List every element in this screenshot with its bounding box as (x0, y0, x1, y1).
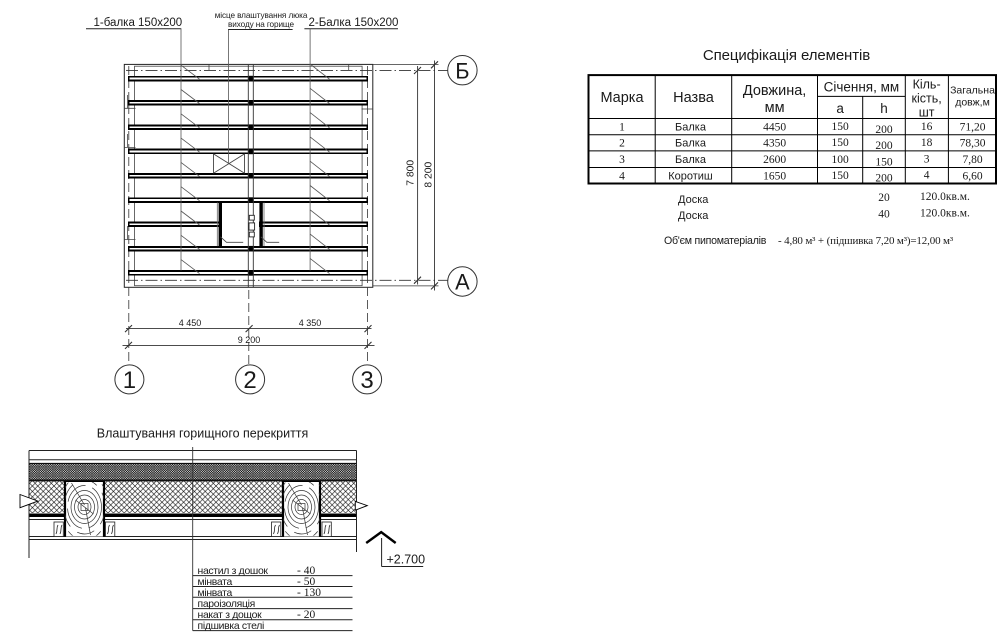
svg-text:78,30: 78,30 (960, 138, 986, 150)
svg-text:Балка: Балка (675, 154, 707, 166)
svg-text:- 4,80 м³ + (підшивка 7,20 м³): - 4,80 м³ + (підшивка 7,20 м³)=12,00 м³ (778, 235, 954, 247)
svg-text:16: 16 (921, 121, 933, 133)
svg-text:Доска: Доска (678, 194, 709, 206)
svg-text:200: 200 (875, 173, 893, 185)
svg-text:4: 4 (924, 170, 930, 182)
svg-text:4450: 4450 (763, 122, 786, 134)
svg-text:2: 2 (243, 367, 256, 394)
svg-text:4 450: 4 450 (179, 318, 202, 328)
svg-text:2-Балка 150х200: 2-Балка 150х200 (309, 17, 399, 29)
svg-text:3: 3 (924, 153, 930, 165)
svg-text:200: 200 (875, 140, 893, 152)
svg-text:Назва: Назва (673, 90, 715, 106)
svg-text:a: a (836, 101, 844, 116)
svg-text:Влаштування горищного перекрит: Влаштування горищного перекриття (97, 427, 308, 441)
svg-text:8 200: 8 200 (423, 162, 434, 188)
svg-text:Довжина,: Довжина, (743, 83, 807, 99)
svg-text:виходу на горище: виходу на горище (228, 20, 294, 29)
svg-text:Специфікація елементів: Специфікація елементів (703, 47, 870, 64)
svg-text:71,20: 71,20 (960, 122, 986, 134)
svg-text:150: 150 (831, 137, 849, 149)
svg-text:А: А (455, 270, 470, 295)
svg-text:200: 200 (875, 124, 893, 136)
svg-text:4 350: 4 350 (299, 318, 322, 328)
svg-text:Балка: Балка (675, 138, 707, 150)
svg-text:120.0кв.м.: 120.0кв.м. (920, 191, 970, 203)
svg-text:Кіль-: Кіль- (913, 78, 941, 92)
svg-text:1-балка 150х200: 1-балка 150х200 (94, 17, 183, 29)
svg-text:9 200: 9 200 (238, 335, 261, 345)
svg-text:100: 100 (831, 154, 849, 166)
svg-text:Січення, мм: Січення, мм (824, 80, 900, 95)
svg-text:1: 1 (123, 367, 136, 394)
svg-text:6,60: 6,60 (962, 171, 982, 183)
svg-text:Доска: Доска (678, 210, 709, 222)
svg-text:3: 3 (619, 154, 625, 166)
svg-text:150: 150 (875, 156, 893, 168)
svg-text:Коротиш: Коротиш (668, 171, 713, 183)
svg-text:7,80: 7,80 (962, 154, 982, 166)
svg-text:1650: 1650 (763, 171, 786, 183)
svg-text:2600: 2600 (763, 154, 786, 166)
svg-text:місце влаштування люка: місце влаштування люка (215, 11, 308, 20)
svg-text:мм: мм (765, 100, 785, 116)
svg-text:Об'єм пипоматеріалів: Об'єм пипоматеріалів (664, 235, 767, 247)
svg-text:Балка: Балка (675, 122, 707, 134)
svg-text:шт: шт (919, 106, 935, 120)
svg-text:18: 18 (921, 137, 933, 149)
svg-text:1: 1 (619, 122, 625, 134)
svg-text:Марка: Марка (600, 90, 644, 106)
svg-text:120.0кв.м.: 120.0кв.м. (920, 208, 970, 220)
svg-text:20: 20 (878, 192, 890, 204)
svg-text:2: 2 (619, 138, 625, 150)
svg-text:40: 40 (878, 209, 890, 221)
svg-text:150: 150 (831, 121, 849, 133)
svg-text:- 20: - 20 (297, 609, 315, 621)
svg-text:Б: Б (455, 58, 469, 83)
svg-text:+2.700: +2.700 (387, 553, 426, 567)
svg-text:4: 4 (619, 171, 625, 183)
svg-text:4350: 4350 (763, 138, 786, 150)
svg-text:h: h (880, 101, 888, 116)
svg-text:7 800: 7 800 (406, 160, 417, 186)
svg-text:150: 150 (831, 170, 849, 182)
svg-text:довж,м: довж,м (955, 97, 990, 109)
svg-text:кість,: кість, (911, 92, 941, 106)
svg-text:Загальна: Загальна (950, 85, 995, 97)
svg-text:3: 3 (360, 367, 373, 394)
